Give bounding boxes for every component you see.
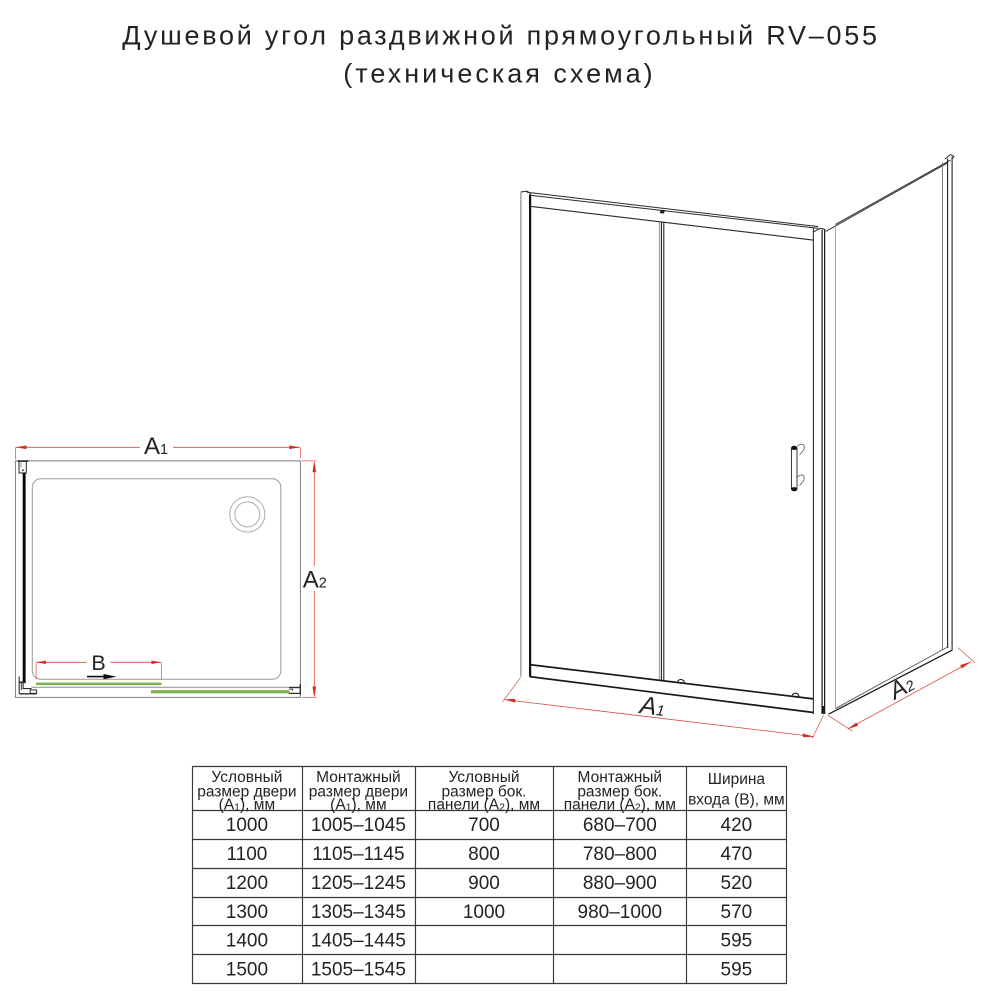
svg-text:420: 420 [721, 815, 753, 836]
svg-text:A2: A2 [303, 566, 327, 593]
svg-text:595: 595 [721, 960, 753, 981]
svg-text:780–800: 780–800 [583, 844, 657, 865]
svg-text:B: B [91, 651, 105, 675]
svg-text:700: 700 [468, 815, 500, 836]
svg-text:470: 470 [721, 844, 753, 865]
svg-text:1000: 1000 [226, 815, 268, 836]
svg-text:595: 595 [721, 931, 753, 952]
svg-text:980–1000: 980–1000 [578, 902, 663, 923]
svg-text:1405–1445: 1405–1445 [311, 931, 406, 952]
svg-text:панели (А2), мм: панели (А2), мм [564, 796, 676, 813]
svg-text:1305–1345: 1305–1345 [311, 902, 406, 923]
svg-text:900: 900 [468, 873, 500, 894]
svg-text:Душевой угол раздвижной прямоу: Душевой угол раздвижной прямоугольный RV… [122, 21, 880, 51]
svg-text:1100: 1100 [226, 844, 267, 865]
svg-text:1300: 1300 [226, 902, 268, 923]
svg-text:570: 570 [721, 902, 753, 923]
svg-text:1200: 1200 [226, 873, 268, 894]
svg-text:панели (А2), мм: панели (А2), мм [428, 796, 540, 813]
svg-text:1500: 1500 [226, 960, 268, 981]
svg-text:(техническая схема): (техническая схема) [343, 59, 655, 89]
svg-text:1005–1045: 1005–1045 [311, 815, 406, 836]
svg-text:800: 800 [468, 844, 500, 865]
svg-text:Ширина: Ширина [708, 771, 766, 788]
svg-text:A2: A2 [883, 670, 919, 706]
svg-text:1400: 1400 [226, 931, 268, 952]
svg-text:1505–1545: 1505–1545 [311, 960, 406, 981]
svg-text:1105–1145: 1105–1145 [312, 844, 404, 865]
svg-text:A1: A1 [636, 691, 666, 722]
svg-text:входа (B), мм: входа (B), мм [688, 792, 785, 809]
svg-text:A1: A1 [144, 433, 168, 460]
svg-text:520: 520 [721, 873, 753, 894]
svg-text:1205–1245: 1205–1245 [311, 873, 406, 894]
svg-text:(А1), мм: (А1), мм [330, 796, 386, 813]
svg-text:880–900: 880–900 [583, 873, 657, 894]
svg-text:1000: 1000 [463, 902, 505, 923]
svg-text:680–700: 680–700 [583, 815, 657, 836]
svg-text:(А1), мм: (А1), мм [219, 796, 275, 813]
